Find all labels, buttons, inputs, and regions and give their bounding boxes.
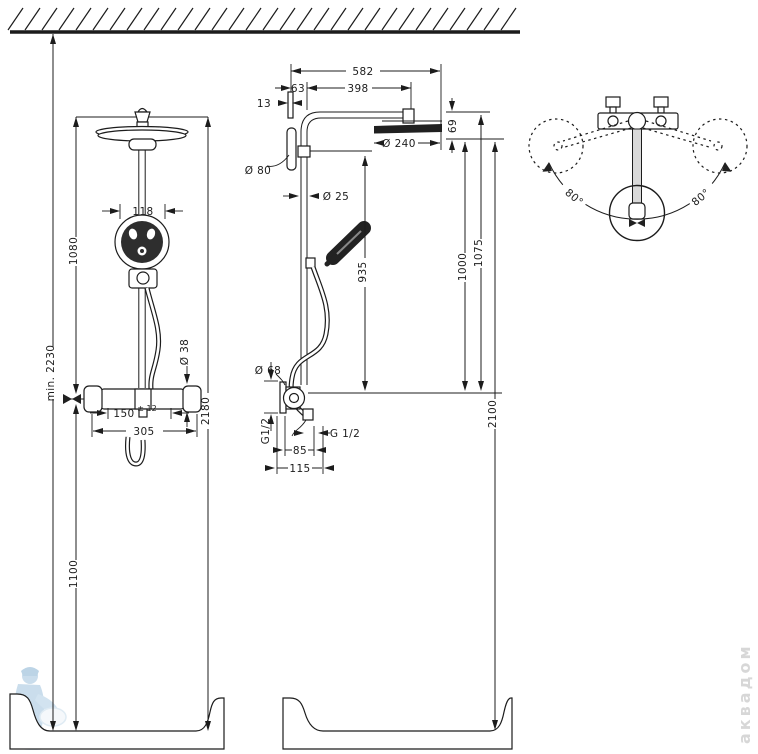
middle-elevation xyxy=(264,64,504,720)
left-elevation xyxy=(53,34,208,722)
dim-thread-right: G 1/2 xyxy=(330,428,360,440)
shop-watermark-text: аквадом xyxy=(735,643,754,744)
dim-pipe-dia: Ø 25 xyxy=(323,191,350,203)
hand-shower-side xyxy=(306,228,364,268)
dim-1075: 1075 xyxy=(473,239,485,267)
ceiling-hatch xyxy=(8,8,520,32)
technical-drawing-page: аквадом xyxy=(0,0,758,754)
dim-305: 305 xyxy=(133,426,154,438)
dim-knob-dia: Ø 38 xyxy=(179,339,191,366)
dim-1100: 1100 xyxy=(68,560,80,588)
dim-min-2230: min. 2230 xyxy=(45,345,57,402)
dim-63: 63 xyxy=(291,83,305,95)
dim-115: 115 xyxy=(289,463,310,475)
dim-valve-dia: Ø 68 xyxy=(255,365,282,377)
right-shower-tray xyxy=(283,698,512,749)
dim-2100: 2100 xyxy=(487,400,499,428)
top-view xyxy=(529,97,747,241)
dim-150-tol: ± 12 xyxy=(137,404,156,413)
dim-150: 150 xyxy=(113,408,134,420)
dim-85: 85 xyxy=(293,445,307,457)
dim-13: 13 xyxy=(257,98,271,110)
dim-118: 118 xyxy=(132,206,153,218)
dim-1000: 1000 xyxy=(457,253,469,281)
dim-69: 69 xyxy=(447,119,459,133)
dim-head-dia: Ø 240 xyxy=(382,138,416,150)
dim-398: 398 xyxy=(347,83,368,95)
dim-2180: 2180 xyxy=(200,397,212,425)
hand-shower-front xyxy=(115,215,169,269)
dim-thread-left: G1/2 xyxy=(260,418,272,445)
dim-wall-dia: Ø 80 xyxy=(245,165,272,177)
dim-935: 935 xyxy=(357,261,369,282)
shower-installation-drawing: аквадом xyxy=(0,0,758,754)
dim-1080: 1080 xyxy=(68,237,80,265)
dim-582: 582 xyxy=(352,66,373,78)
